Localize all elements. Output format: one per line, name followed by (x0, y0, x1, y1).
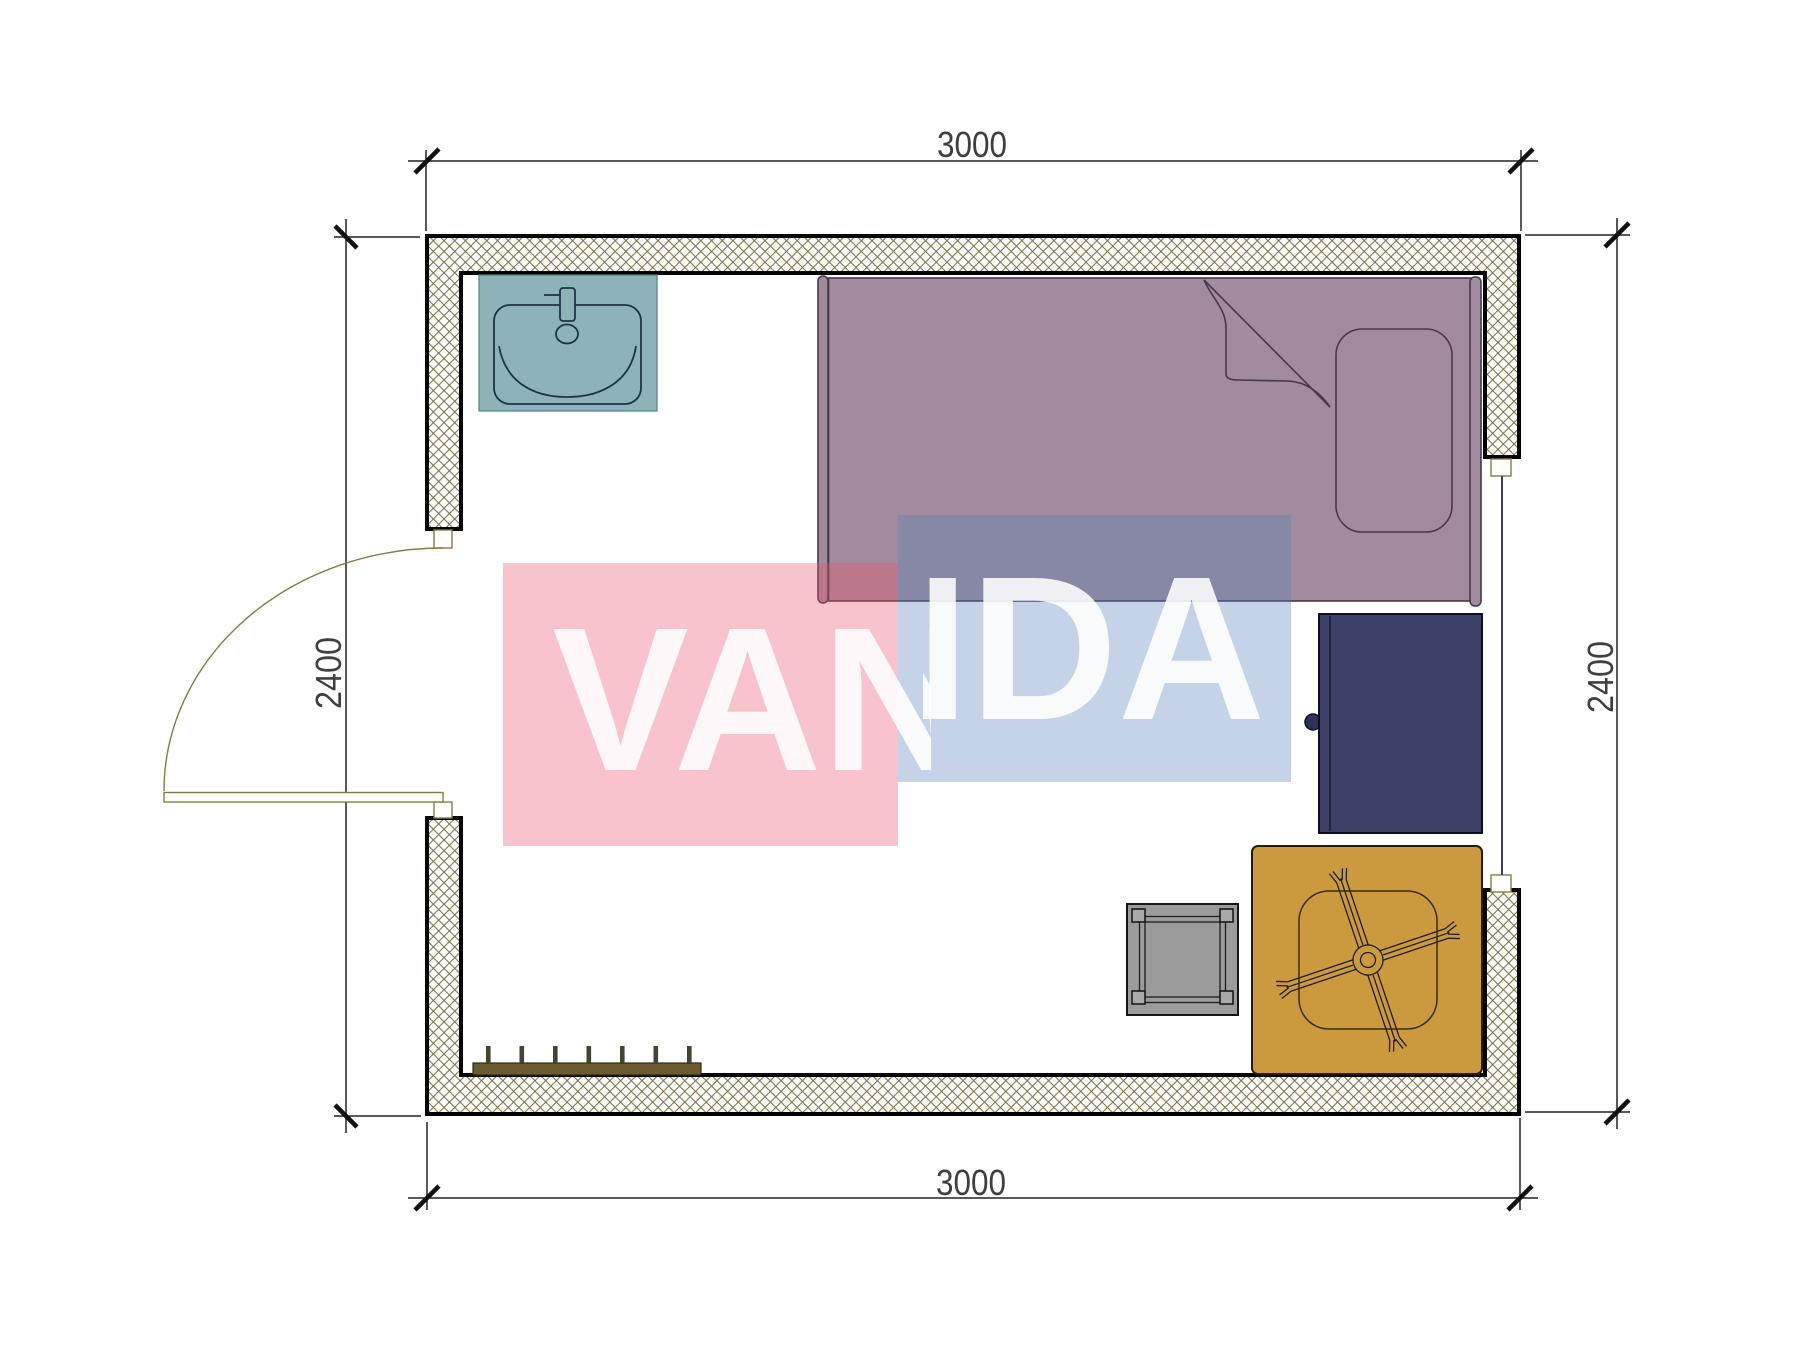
svg-text:3000: 3000 (937, 124, 1007, 165)
svg-text:3000: 3000 (936, 1162, 1006, 1203)
svg-text:2400: 2400 (308, 637, 349, 709)
svg-text:2400: 2400 (1580, 641, 1621, 713)
